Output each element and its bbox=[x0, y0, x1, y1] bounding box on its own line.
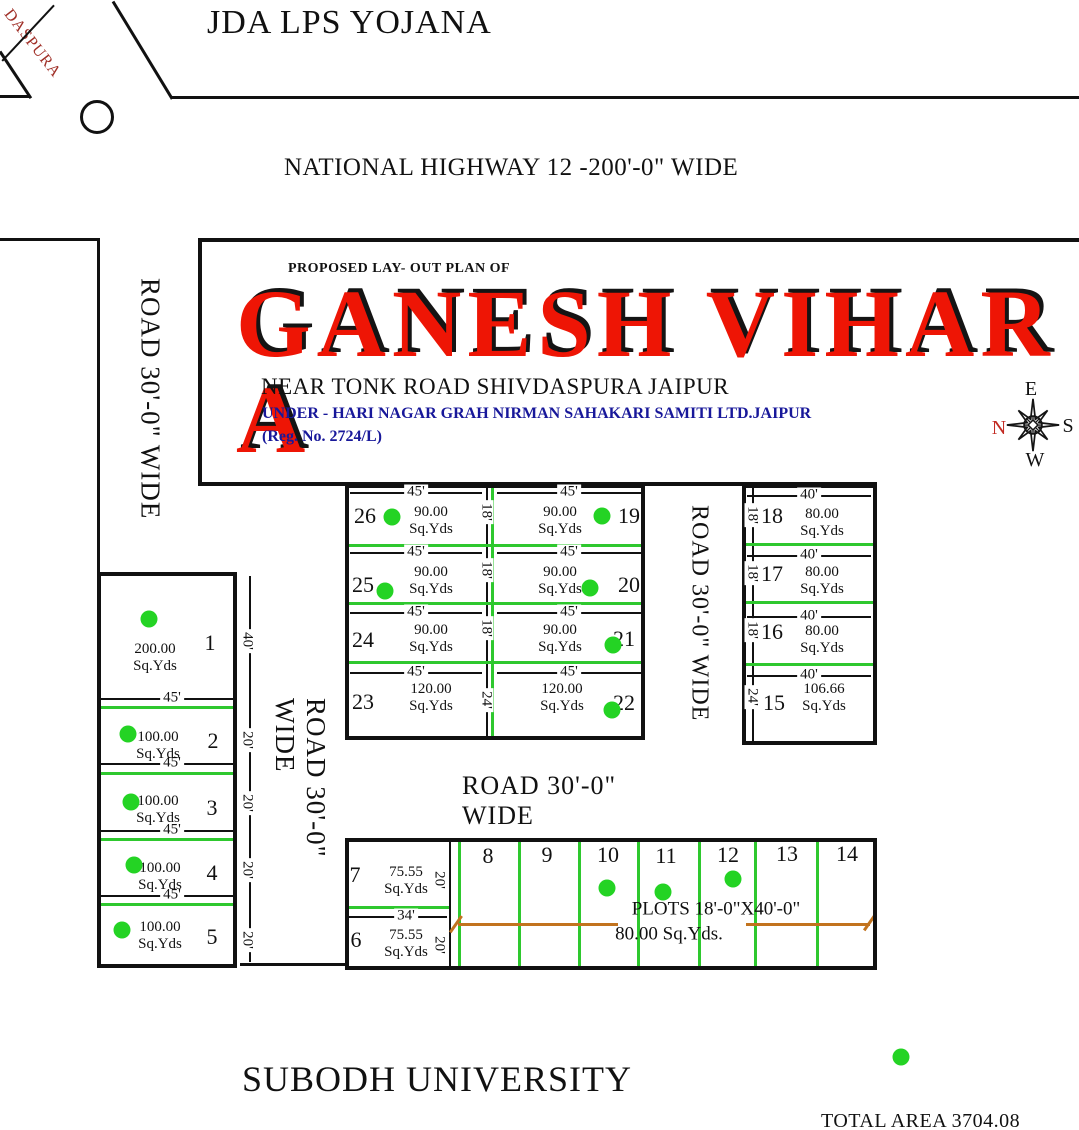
plot-number: 4 bbox=[207, 862, 218, 884]
plot-number: 20 bbox=[618, 574, 640, 596]
dimension-label: 20' bbox=[240, 858, 255, 882]
dimension-label: 20' bbox=[240, 791, 255, 815]
plot-number: 17 bbox=[761, 563, 783, 585]
dimension-label: 20' bbox=[432, 868, 447, 892]
compass-letter: N bbox=[992, 418, 1006, 438]
plan-line bbox=[112, 1, 174, 100]
dimension-label: 24' bbox=[745, 685, 760, 709]
plot-number: 11 bbox=[655, 845, 676, 867]
plot-number: 25 bbox=[352, 574, 374, 596]
plot-area-label: 90.00Sq.Yds bbox=[538, 504, 582, 538]
dimension-label: 45' bbox=[557, 485, 581, 500]
compass-letter: S bbox=[1062, 416, 1073, 436]
plot-area-label: 120.00Sq.Yds bbox=[409, 681, 453, 715]
plot-number: 24 bbox=[352, 629, 374, 651]
layout-plan-canvas: JDA LPS YOJANA NATIONAL HIGHWAY 12 -200'… bbox=[0, 0, 1079, 1130]
plot-area-label: 75.55Sq.Yds bbox=[384, 927, 428, 961]
total-area-label: TOTAL AREA 3704.08 SQ.YD bbox=[821, 1110, 1079, 1130]
dimension-label: 20' bbox=[432, 933, 447, 957]
sold-marker-dot bbox=[126, 857, 143, 874]
road-label: ROAD 30'-0" WIDE bbox=[462, 783, 692, 819]
plot-number: 3 bbox=[207, 797, 218, 819]
plot-number: 15 bbox=[763, 692, 785, 714]
plot-area-label: 90.00Sq.Yds bbox=[538, 622, 582, 656]
dimension-label: 20' bbox=[240, 928, 255, 952]
highway-label: NATIONAL HIGHWAY 12 -200'-0" WIDE bbox=[284, 154, 738, 182]
sold-marker-dot bbox=[893, 1049, 910, 1066]
plot-number: 7 bbox=[350, 864, 361, 886]
scheme-title: JDA LPS YOJANA bbox=[207, 4, 492, 42]
plot-number: 6 bbox=[351, 929, 362, 951]
plot-area-label: 90.00Sq.Yds bbox=[409, 504, 453, 538]
dimension-label: 45' bbox=[404, 605, 428, 620]
plan-line bbox=[0, 238, 100, 241]
plots-size-caption: PLOTS 18'-0"X40'-0" bbox=[632, 900, 801, 919]
plan-line bbox=[172, 96, 1079, 99]
dimension-label: 18' bbox=[479, 500, 494, 524]
plan-line bbox=[0, 95, 30, 98]
registration-number: (Reg. No. 2724/L) bbox=[262, 428, 382, 446]
sold-marker-dot bbox=[582, 580, 599, 597]
compass-letter: W bbox=[1026, 450, 1045, 470]
university-label: SUBODH UNIVERSITY bbox=[242, 1058, 632, 1100]
plot-number: 14 bbox=[836, 843, 858, 865]
plots-size-caption: 80.00 Sq.Yds. bbox=[615, 925, 723, 944]
plot-area-label: 90.00Sq.Yds bbox=[409, 564, 453, 598]
sold-marker-dot bbox=[594, 508, 611, 525]
dimension-label: 18' bbox=[745, 561, 760, 585]
sold-marker-dot bbox=[604, 702, 621, 719]
plot-area-label: 80.00Sq.Yds bbox=[800, 506, 844, 540]
dimension-label: 45' bbox=[160, 691, 184, 706]
sold-marker-dot bbox=[123, 794, 140, 811]
plot-area-label: 100.00Sq.Yds bbox=[136, 793, 180, 827]
road-label: ROAD 30'-0" WIDE bbox=[280, 698, 320, 934]
dimension-label: 18' bbox=[479, 558, 494, 582]
sold-marker-dot bbox=[120, 726, 137, 743]
sold-marker-dot bbox=[377, 583, 394, 600]
road-label: ROAD 30'-0" WIDE bbox=[681, 496, 717, 730]
sold-marker-dot bbox=[599, 880, 616, 897]
plot-area-label: 90.00Sq.Yds bbox=[538, 564, 582, 598]
plan-line bbox=[240, 963, 345, 966]
plot-area-label: 90.00Sq.Yds bbox=[409, 622, 453, 656]
dimension-label: 18' bbox=[479, 616, 494, 640]
plot-area-label: 100.00Sq.Yds bbox=[138, 860, 182, 894]
dimension-label: 18' bbox=[745, 503, 760, 527]
dimension-label: 45' bbox=[404, 485, 428, 500]
dimension-label: 34' bbox=[394, 909, 418, 924]
sold-marker-dot bbox=[114, 922, 131, 939]
plot-number: 9 bbox=[542, 844, 553, 866]
road-label: ROAD 30'-0" WIDE bbox=[130, 266, 170, 532]
dimension-label: 40' bbox=[240, 629, 255, 653]
dimension-label: 40' bbox=[797, 548, 821, 563]
plan-line bbox=[198, 238, 1079, 242]
dimension-label: 45' bbox=[557, 665, 581, 680]
plot-area-label: 200.00Sq.Yds bbox=[133, 641, 177, 675]
project-location: NEAR TONK ROAD SHIVDASPURA JAIPUR bbox=[261, 374, 729, 400]
plot-number: 13 bbox=[776, 843, 798, 865]
plot-number: 26 bbox=[354, 505, 376, 527]
plot-number: 2 bbox=[208, 730, 219, 752]
plot-number: 5 bbox=[207, 926, 218, 948]
plot-area-label: 100.00Sq.Yds bbox=[138, 919, 182, 953]
plot-number: 16 bbox=[761, 621, 783, 643]
plot-area-label: 80.00Sq.Yds bbox=[800, 564, 844, 598]
society-name: UNDER - HARI NAGAR GRAH NIRMAN SAHAKARI … bbox=[262, 405, 811, 423]
plot-number: 19 bbox=[618, 505, 640, 527]
plot-number: 23 bbox=[352, 691, 374, 713]
plot-number: 12 bbox=[717, 844, 739, 866]
sold-marker-dot bbox=[141, 611, 158, 628]
dimension-label: 45' bbox=[557, 605, 581, 620]
plot-area-label: 80.00Sq.Yds bbox=[800, 623, 844, 657]
plot-area-label: 106.66Sq.Yds bbox=[802, 681, 846, 715]
plot-area-label: 75.55Sq.Yds bbox=[384, 864, 428, 898]
road-circle bbox=[80, 100, 114, 134]
plot-number: 18 bbox=[761, 505, 783, 527]
dimension-label: 40' bbox=[797, 488, 821, 503]
dimension-label: 18' bbox=[745, 618, 760, 642]
sold-marker-dot bbox=[605, 637, 622, 654]
plot-number: 8 bbox=[483, 845, 494, 867]
dimension-label: 45' bbox=[404, 665, 428, 680]
sold-marker-dot bbox=[384, 509, 401, 526]
dimension-label: 45' bbox=[404, 545, 428, 560]
plan-line bbox=[198, 240, 202, 486]
sold-marker-dot bbox=[725, 871, 742, 888]
dimension-label: 45' bbox=[557, 545, 581, 560]
dimension-label: 20' bbox=[240, 728, 255, 752]
compass-letter: E bbox=[1025, 379, 1037, 399]
plot-number: 1 bbox=[205, 632, 216, 654]
plan-line bbox=[97, 240, 100, 576]
plot-number: 10 bbox=[597, 844, 619, 866]
plot-area-label: 100.00Sq.Yds bbox=[136, 729, 180, 763]
sold-marker-dot bbox=[655, 884, 672, 901]
dimension-label: 24' bbox=[479, 688, 494, 712]
dimension-label: 40' bbox=[797, 609, 821, 624]
plot-area-label: 120.00Sq.Yds bbox=[540, 681, 584, 715]
